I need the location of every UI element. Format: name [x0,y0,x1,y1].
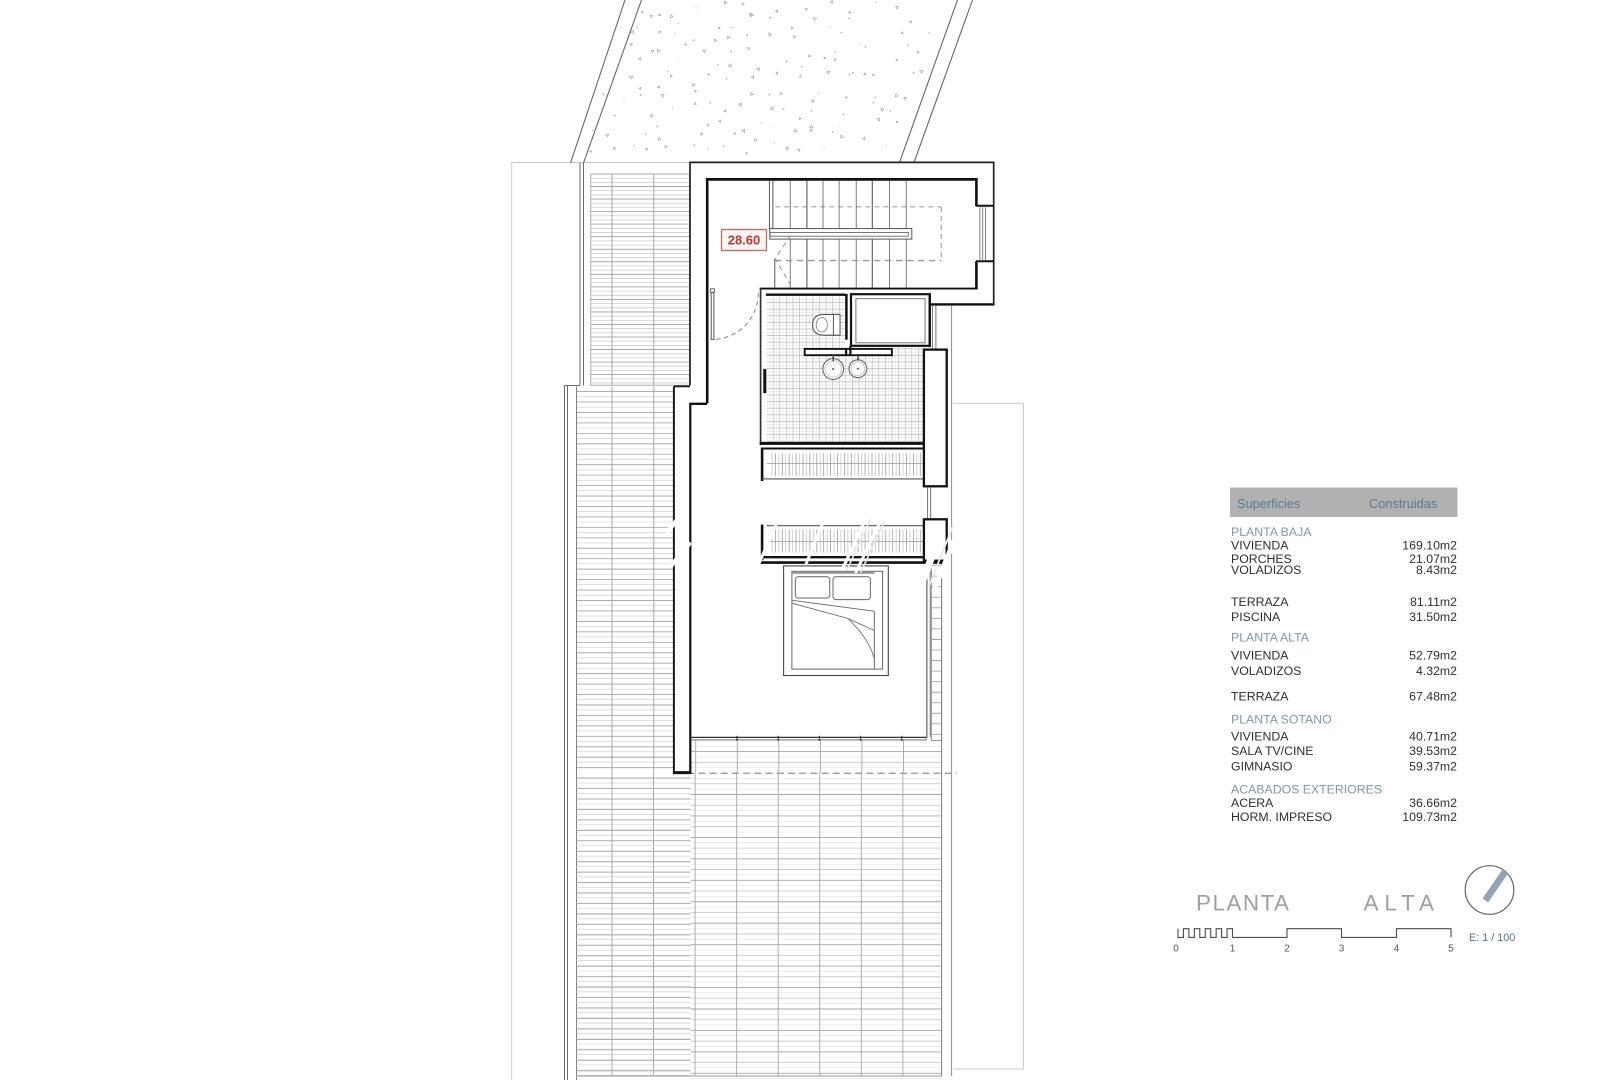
svg-text:HORM. IMPRESO: HORM. IMPRESO [1231,810,1332,824]
svg-text:Construidas: Construidas [1369,496,1437,511]
svg-text:E: 1 / 100: E: 1 / 100 [1469,932,1515,944]
svg-text:81.11m2: 81.11m2 [1410,595,1457,609]
svg-text:169.10m2: 169.10m2 [1402,538,1457,552]
svg-text:2: 2 [1284,944,1290,955]
svg-text:59.37m2: 59.37m2 [1409,759,1457,773]
svg-text:GIMNASIO: GIMNASIO [1231,759,1293,773]
svg-text:8.43m2: 8.43m2 [1416,563,1457,577]
svg-text:VIVIENDA: VIVIENDA [1231,729,1289,743]
svg-text:ACABADOS EXTERIORES: ACABADOS EXTERIORES [1231,782,1382,796]
svg-text:3: 3 [1339,944,1345,955]
svg-text:4.32m2: 4.32m2 [1416,664,1457,678]
svg-text:PISCINA: PISCINA [1231,610,1281,624]
svg-text:ACERA: ACERA [1231,796,1274,810]
svg-text:VIVIENDA: VIVIENDA [1231,538,1289,552]
svg-text:67.48m2: 67.48m2 [1409,689,1457,703]
svg-text:52.79m2: 52.79m2 [1409,648,1457,662]
svg-text:VOLADIZOS: VOLADIZOS [1231,664,1301,678]
svg-text:SALA TV/CINE: SALA TV/CINE [1231,744,1313,758]
svg-text:31.50m2: 31.50m2 [1409,610,1457,624]
svg-text:0: 0 [1173,944,1179,955]
svg-text:28.60: 28.60 [728,233,761,248]
svg-text:40.71m2: 40.71m2 [1409,729,1457,743]
svg-text:TERRAZA: TERRAZA [1231,595,1289,609]
svg-text:PLANTA SOTANO: PLANTA SOTANO [1231,712,1332,726]
svg-text:VIVIENDA: VIVIENDA [1231,648,1289,662]
svg-text:PLANTA: PLANTA [1196,891,1289,916]
svg-text:PLANTA ALTA: PLANTA ALTA [1231,630,1310,644]
svg-text:4: 4 [1394,944,1400,955]
svg-text:1: 1 [1230,944,1236,955]
svg-text:TERRAZA: TERRAZA [1231,689,1289,703]
svg-text:PLANTA BAJA: PLANTA BAJA [1231,525,1312,539]
svg-text:39.53m2: 39.53m2 [1409,744,1457,758]
svg-text:VOLADIZOS: VOLADIZOS [1231,563,1301,577]
svg-text:36.66m2: 36.66m2 [1409,796,1457,810]
svg-text:Superficies: Superficies [1237,496,1300,511]
svg-text:109.73m2: 109.73m2 [1402,810,1457,824]
svg-text:5: 5 [1448,944,1454,955]
